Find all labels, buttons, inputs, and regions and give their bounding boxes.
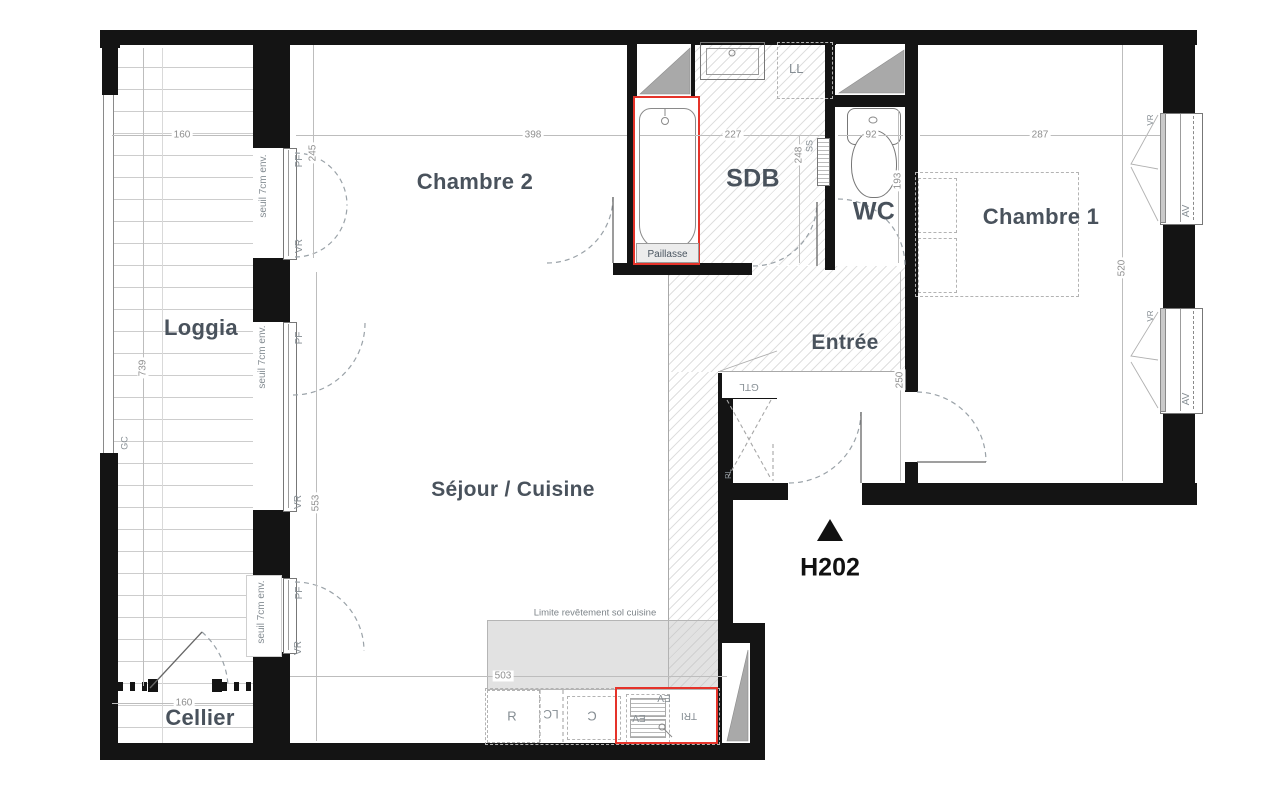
bathtub	[639, 108, 696, 251]
dim-sejour-w: 503	[493, 671, 514, 682]
kitchen-limit-label: Limite revêtement sol cuisine	[534, 608, 657, 618]
room-label-cellier: Cellier	[165, 705, 234, 731]
loggia-joint-line	[162, 48, 163, 743]
dim-loggia-w: 160	[172, 130, 193, 141]
tag-cooker: C	[587, 710, 596, 723]
room-label-chambre2: Chambre 2	[417, 169, 533, 195]
wall-kitchen-corner-top	[718, 623, 765, 643]
sdb-soffit-edge-l	[633, 44, 637, 97]
room-label-entree: Entrée	[811, 331, 878, 355]
bed-pillow-bottom	[918, 238, 957, 293]
window-sejour-upper-mullion	[288, 324, 289, 508]
room-label-chambre1: Chambre 1	[983, 204, 1099, 230]
tag-vr-sejour-lower: VR	[294, 641, 304, 655]
window-chambre1-upper-glazing	[1160, 113, 1166, 223]
duct-niche	[722, 643, 750, 743]
claustra-jamb-left	[148, 679, 158, 692]
tag-vr-sejour-upper: VR	[294, 495, 304, 509]
tag-av-upper: AV	[1182, 205, 1192, 218]
dim-sdb-h: 248	[794, 145, 805, 166]
tag-dishwasher: LC	[543, 708, 558, 720]
wall-right-2	[1163, 223, 1195, 308]
dim-chambre1-h: 520	[1117, 258, 1128, 279]
tag-seuil-sejour-lower: seuil 7cm env.	[257, 580, 267, 643]
dim-sdb-w: 227	[723, 130, 744, 141]
railing-loggia	[103, 95, 114, 453]
window-sejour-lower-mullion	[288, 580, 289, 650]
room-label-wc: WC	[853, 198, 895, 227]
sdb-soffit-box	[637, 44, 691, 97]
tile-boundary-bottom	[718, 371, 905, 372]
door-swing-arcs	[202, 153, 986, 686]
tag-sink-1: EV	[657, 692, 670, 702]
sdb-soffit-edge-r	[691, 44, 695, 97]
wall-loggia-col-4	[253, 652, 290, 743]
claustra-jamb-right	[212, 679, 222, 692]
tag-pf-sejour-upper: PF	[295, 332, 305, 345]
wall-entree-bottom-left	[733, 483, 788, 500]
dimline-chambre2-w	[296, 135, 627, 136]
room-label-sdb: SDB	[726, 165, 780, 194]
tag-pf-sejour-lower: PF	[295, 587, 305, 600]
room-label-sejour: Séjour / Cuisine	[431, 478, 595, 502]
wc-soffit-box	[836, 44, 905, 95]
tag-vr-win-lower: VR	[1147, 310, 1155, 321]
wall-corner-tl	[100, 30, 120, 48]
dim-chambre2-w: 398	[523, 130, 544, 141]
window-sejour-upper	[283, 322, 297, 512]
wall-right-1	[1163, 30, 1195, 113]
entree-tiled-floor	[668, 266, 905, 372]
wall-closet-left	[718, 373, 733, 623]
wall-left-upper	[102, 48, 118, 95]
kitchen-floor-covering	[487, 620, 720, 690]
window-chambre1-lower-shutter	[1193, 311, 1194, 409]
window-chambre1-lower-glazing	[1160, 308, 1166, 412]
unit-code: H202	[800, 554, 860, 583]
dim-wc-h: 193	[893, 171, 904, 192]
wall-wc-soffit-band	[835, 95, 905, 107]
tag-gc: GC	[121, 436, 130, 450]
wall-loggia-col-3	[253, 510, 290, 578]
claustra-right	[222, 682, 253, 691]
tag-tri: TRI	[681, 710, 697, 720]
wall-left-lower	[100, 453, 118, 760]
dim-chambre2-win: 245	[308, 143, 319, 164]
wall-kitchen-corner-right	[750, 643, 765, 743]
entrance-arrow-icon	[817, 519, 843, 541]
dim-entree-d: 250	[895, 370, 906, 391]
sdb-vanity-basin	[706, 48, 759, 75]
towel-radiator	[817, 138, 830, 186]
dim-chambre1-w: 287	[1030, 130, 1051, 141]
tag-pl: PL	[725, 469, 733, 479]
tag-seuil-sejour-upper: seuil 7cm env.	[258, 325, 268, 388]
tag-seuil-chambre2: seuil 7cm env.	[259, 154, 269, 217]
room-label-loggia: Loggia	[164, 315, 238, 341]
tag-sink-2: EV	[632, 712, 645, 722]
tag-fridge: R	[507, 710, 516, 723]
wall-bottom	[100, 743, 765, 760]
washing-machine-slot	[777, 42, 833, 99]
window-chambre1-upper-shutter	[1193, 116, 1194, 220]
dim-loggia-h: 739	[138, 358, 149, 379]
wall-right-3	[1163, 412, 1195, 505]
paillasse-box: Paillasse	[636, 243, 699, 263]
wall-top	[100, 30, 1197, 45]
window-chambre2-mullion	[288, 150, 289, 256]
loggia-decking	[110, 46, 253, 743]
floor-plan: Paillasse H202	[0, 0, 1272, 800]
dim-sejour-h: 553	[311, 493, 322, 514]
tag-gtl: GTL	[739, 381, 758, 391]
tag-ll: LL	[789, 62, 803, 75]
wall-loggia-col-1	[253, 45, 290, 148]
paillasse-label: Paillasse	[647, 249, 687, 260]
wall-chambre1-door-stub	[905, 462, 918, 483]
tag-vr-chambre2: VR	[295, 239, 305, 253]
wall-bottom-right	[862, 483, 1197, 505]
bed-pillow-top	[918, 178, 957, 233]
dim-wc-w: 92	[863, 130, 878, 141]
wall-loggia-col-2	[253, 258, 290, 322]
tag-pf-chambre2: PF	[295, 155, 305, 168]
tag-av-lower: AV	[1182, 393, 1192, 406]
tag-vr-win-upper: VR	[1147, 114, 1155, 125]
tag-ss: SS	[806, 140, 815, 152]
